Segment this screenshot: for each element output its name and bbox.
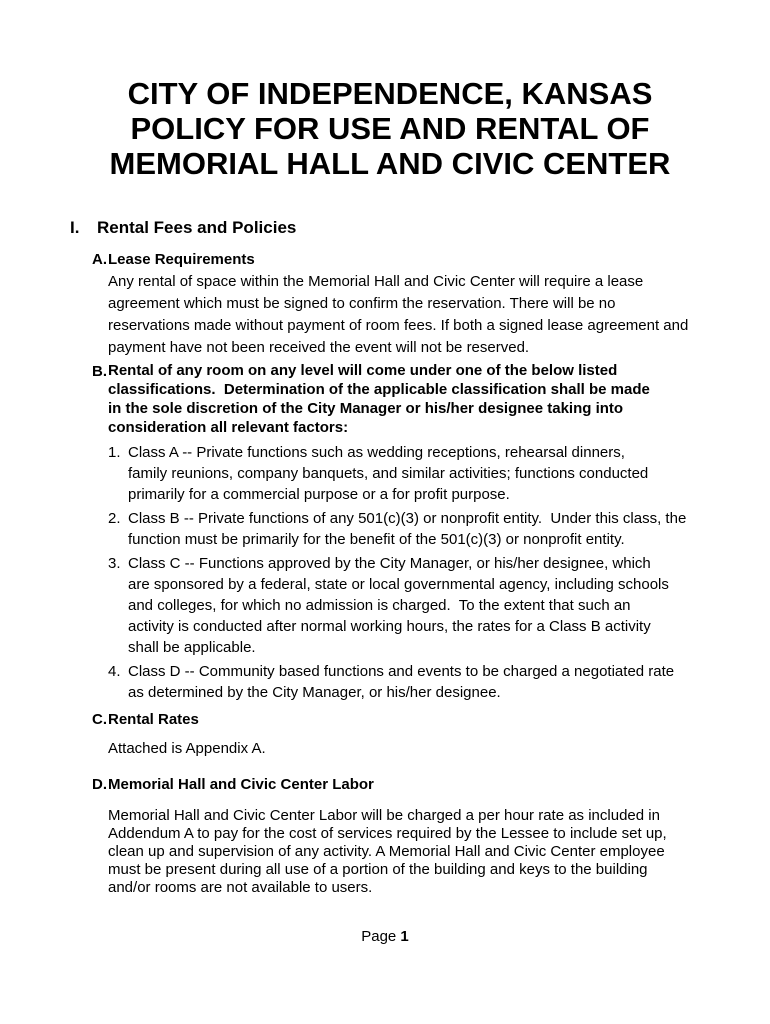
section-number: I. (70, 218, 97, 238)
section-heading-text: Rental Fees and Policies (97, 218, 296, 238)
page-footer-label: Page (361, 928, 400, 945)
item-d-paragraph: Memorial Hall and Civic Center Labor wil… (108, 807, 710, 897)
section-heading: I. Rental Fees and Policies (70, 218, 710, 238)
document-title: CITY OF INDEPENDENCE, KANSAS POLICY FOR … (70, 76, 710, 181)
list-item-3-text: Class C -- Functions approved by the Cit… (128, 553, 710, 658)
item-b-label: B. (92, 361, 108, 703)
item-a-label: A. (92, 249, 108, 359)
item-c-heading: Rental Rates (108, 709, 710, 731)
item-d-label: D. (92, 774, 108, 897)
list-item-2-text: Class B -- Private functions of any 501(… (128, 508, 710, 550)
list-item-2-number: 2. (108, 508, 128, 550)
document-title-line-1: CITY OF INDEPENDENCE, KANSAS (70, 76, 710, 111)
item-d: D. Memorial Hall and Civic Center Labor … (92, 774, 710, 897)
document-title-line-2: POLICY FOR USE AND RENTAL OF (70, 111, 710, 146)
item-a-paragraph: Any rental of space within the Memorial … (108, 271, 710, 359)
item-c-label: C. (92, 709, 108, 760)
item-b: B. Rental of any room on any level will … (92, 361, 710, 703)
item-a-content: Lease Requirements Any rental of space w… (108, 249, 710, 359)
list-item-class-a: 1. Class A -- Private functions such as … (108, 442, 710, 505)
item-d-heading: Memorial Hall and Civic Center Labor (108, 774, 710, 796)
item-a-heading: Lease Requirements (108, 249, 710, 271)
item-d-content: Memorial Hall and Civic Center Labor Mem… (108, 774, 710, 897)
list-item-class-b: 2. Class B -- Private functions of any 5… (108, 508, 710, 550)
list-item-3-number: 3. (108, 553, 128, 658)
section-items: A. Lease Requirements Any rental of spac… (70, 249, 710, 897)
item-c-paragraph: Attached is Appendix A. (108, 738, 710, 760)
list-item-class-c: 3. Class C -- Functions approved by the … (108, 553, 710, 658)
list-item-4-number: 4. (108, 661, 128, 703)
document-page: CITY OF INDEPENDENCE, KANSAS POLICY FOR … (0, 0, 770, 1024)
item-c-content: Rental Rates Attached is Appendix A. (108, 709, 710, 760)
item-b-heading: Rental of any room on any level will com… (108, 361, 710, 437)
list-item-1-number: 1. (108, 442, 128, 505)
document-body: CITY OF INDEPENDENCE, KANSAS POLICY FOR … (70, 76, 710, 897)
item-c: C. Rental Rates Attached is Appendix A. (92, 709, 710, 760)
list-item-4-text: Class D -- Community based functions and… (128, 661, 710, 703)
list-item-class-d: 4. Class D -- Community based functions … (108, 661, 710, 703)
item-b-content: Rental of any room on any level will com… (108, 361, 710, 703)
document-title-line-3: MEMORIAL HALL AND CIVIC CENTER (70, 146, 710, 181)
classification-list: 1. Class A -- Private functions such as … (108, 442, 710, 703)
page-footer: Page 1 (0, 928, 770, 946)
item-a: A. Lease Requirements Any rental of spac… (92, 249, 710, 359)
page-number: 1 (400, 928, 408, 945)
list-item-1-text: Class A -- Private functions such as wed… (128, 442, 710, 505)
